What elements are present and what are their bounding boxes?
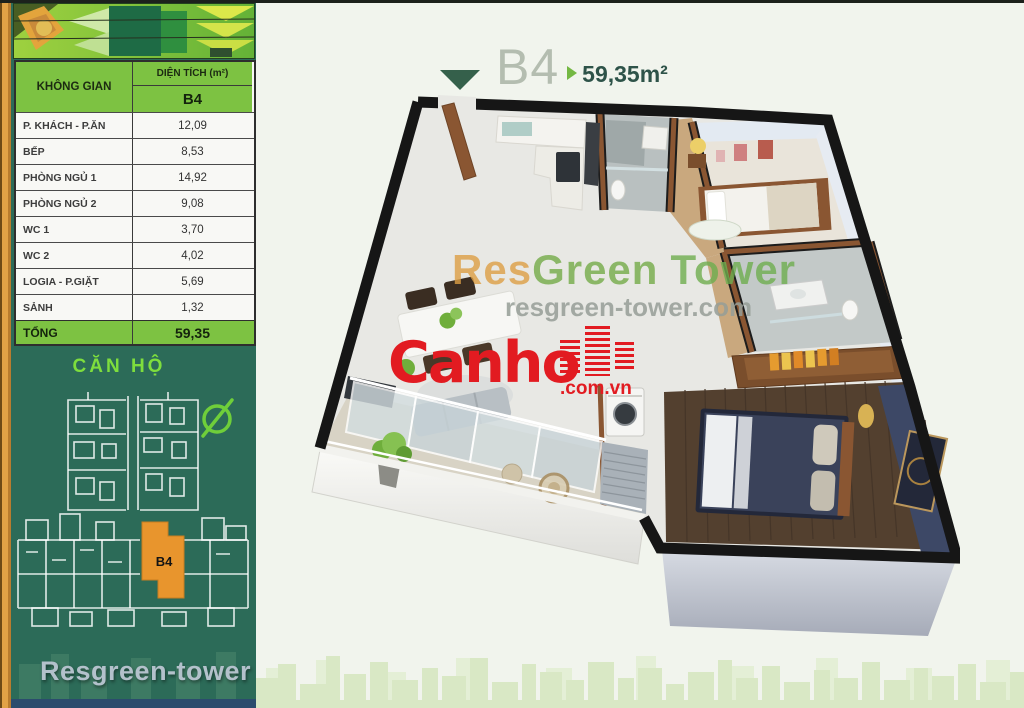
watermark-green: Green [532,246,658,293]
room-area: 4,02 [133,243,252,268]
bedroom2-rug [689,220,741,240]
poster [758,140,773,159]
wc1-shower [606,120,646,166]
room-area: 8,53 [133,139,252,164]
arrow-right-icon [567,66,577,80]
total-value: 59,35 [133,321,252,344]
room-label: LOGIA - P.GIẶT [16,269,133,294]
area-header-cell: DIỆN TÍCH (m²) [133,62,252,86]
white-blanket [702,415,737,508]
table-row: BẾP8,53 [16,138,254,164]
room-label: PHÒNG NGỦ 1 [16,165,133,190]
building-plan-lower: B4 [12,500,254,642]
table-row: PHÒNG NGỦ 29,08 [16,190,254,216]
room-area: 1,32 [133,295,252,320]
room-area: 9,08 [133,191,252,216]
poster [716,150,725,162]
room-label: PHÒNG NGỦ 2 [16,191,133,216]
room-label: BẾP [16,139,133,164]
pillow [810,470,836,511]
orange-frame [0,0,11,708]
table-row: P. KHÁCH - P.ĂN12,09 [16,112,254,138]
watermark-site: resgreen-tower.com [505,292,752,323]
table-total-row: TỔNG 59,35 [16,320,254,344]
table-header: KHÔNG GIAN DIỆN TÍCH (m²) B4 [16,62,254,112]
building-plan-upper [56,390,208,516]
banner-logo-graphic [13,3,255,59]
room-label: WC 1 [16,217,133,242]
area-table: KHÔNG GIAN DIỆN TÍCH (m²) B4 P. KHÁCH - … [14,60,256,346]
canho-building-icon [560,328,640,380]
footer-brand: Resgreen-tower [40,656,251,687]
unit-header-cell: B4 [133,86,252,112]
room-label: SẢNH [16,295,133,320]
room-area: 14,92 [133,165,252,190]
room-area: 3,70 [133,217,252,242]
room-area: 5,69 [133,269,252,294]
pillow [812,424,838,465]
room-label: WC 2 [16,243,133,268]
unit-area: 59,35m² [582,61,668,88]
footer-blue-strip [11,699,256,708]
poster [734,144,747,161]
top-border [0,0,1024,3]
watermark-brand: ResGreenTower [452,246,796,294]
table-row: WC 13,70 [16,216,254,242]
section-heading: CĂN HỘ [14,356,224,378]
table-row: SẢNH1,32 [16,294,254,320]
table-row: PHÒNG NGỦ 114,92 [16,164,254,190]
fridge [584,122,600,186]
unit-code: B4 [496,42,559,92]
canho-domain: .com.vn [560,378,632,400]
room-area: 12,09 [133,113,252,138]
canho-logo: Canho .com.vn [388,328,648,400]
nightstand [688,154,706,168]
table-row: WC 24,02 [16,242,254,268]
room-label: P. KHÁCH - P.ĂN [16,113,133,138]
brochure-page: Resgreen-tower [0,0,1024,708]
table-row: LOGIA - P.GIẶT5,69 [16,268,254,294]
space-header-cell: KHÔNG GIAN [16,62,133,112]
table-body: P. KHÁCH - P.ĂN12,09BẾP8,53PHÒNG NGỦ 114… [16,112,254,320]
triangle-down-icon [440,70,480,90]
watermark-tower: Tower [670,246,796,293]
sidebar: Resgreen-tower [0,0,256,708]
laundry-nook [600,388,648,514]
unit-title: B4 59,35m² [440,42,668,92]
total-label: TỔNG [16,321,133,344]
unit-b4-label: B4 [156,554,173,569]
vase [858,404,874,428]
cooktop [556,152,580,182]
bedroom-exterior-face [662,550,956,636]
lamp [690,138,706,154]
watermark-res: Res [452,246,532,293]
canho-logo-text: Canho [388,330,579,396]
